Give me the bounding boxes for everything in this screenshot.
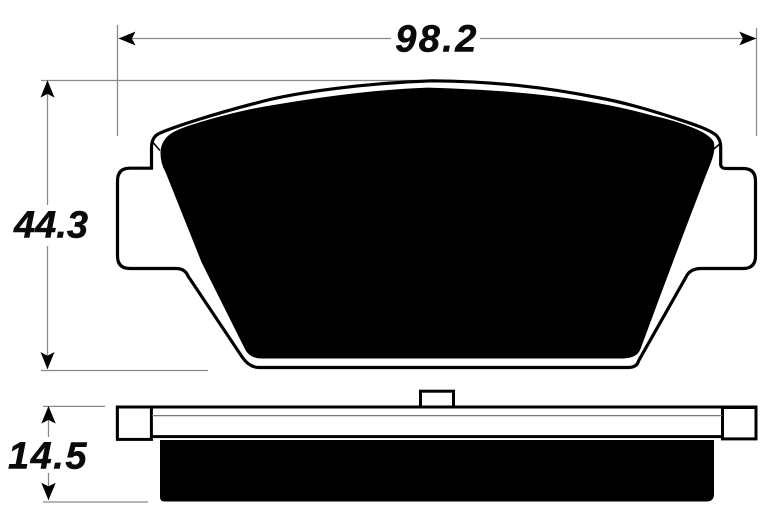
svg-text:44.3: 44.3 [13,205,88,247]
svg-text:98.2: 98.2 [395,19,479,61]
svg-text:14.5: 14.5 [8,436,88,478]
